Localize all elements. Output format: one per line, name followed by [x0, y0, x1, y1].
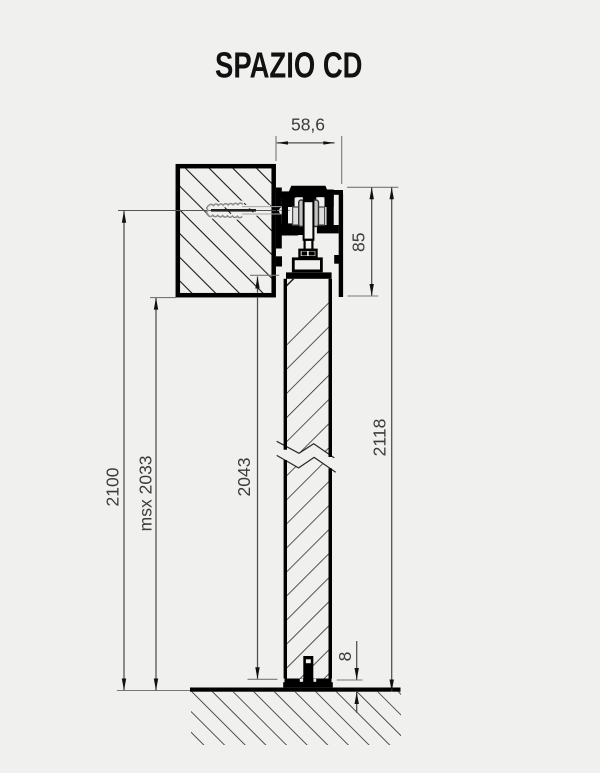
svg-text:8: 8 [335, 652, 355, 662]
svg-text:2118: 2118 [370, 419, 390, 457]
svg-text:2043: 2043 [234, 458, 254, 497]
svg-text:SPAZIO CD: SPAZIO CD [215, 45, 363, 86]
svg-text:2100: 2100 [103, 467, 123, 506]
svg-text:58,6: 58,6 [291, 115, 325, 135]
svg-text:85: 85 [349, 233, 369, 252]
svg-text:msx 2033: msx 2033 [136, 455, 156, 531]
